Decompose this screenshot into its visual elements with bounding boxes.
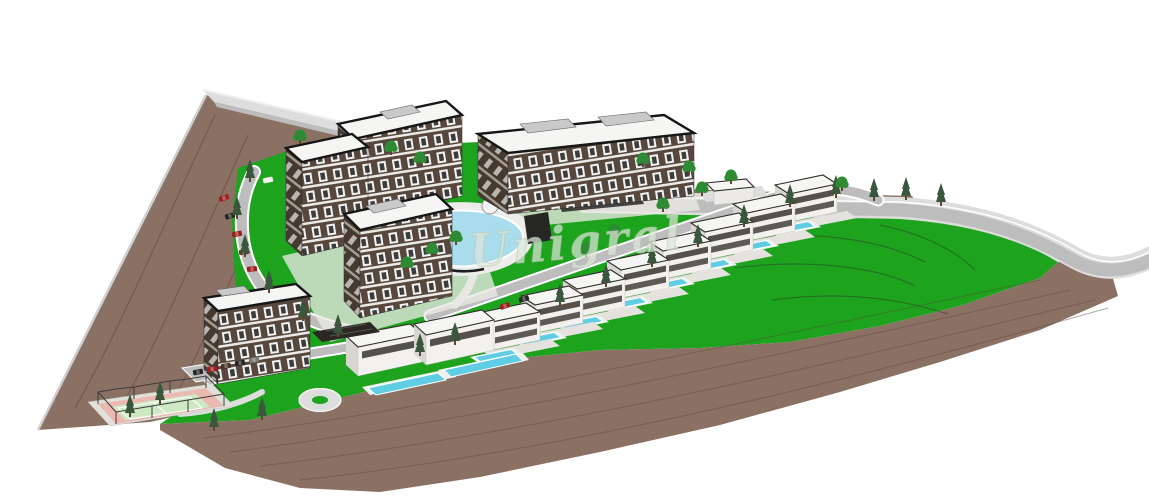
- architectural-render: Unigral: [0, 0, 1149, 500]
- site-plan-canvas: Unigral: [0, 0, 1149, 500]
- apartment-block-3: [344, 194, 452, 318]
- apartment-block-southwest: [204, 284, 310, 384]
